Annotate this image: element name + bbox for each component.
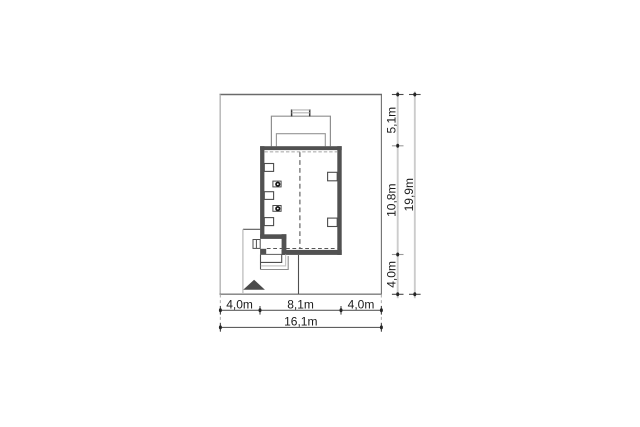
svg-text:8,1m: 8,1m bbox=[287, 298, 314, 312]
svg-text:19,9m: 19,9m bbox=[402, 178, 416, 211]
svg-text:16,1m: 16,1m bbox=[284, 315, 317, 329]
svg-text:4,0m: 4,0m bbox=[226, 298, 253, 312]
svg-text:5,1m: 5,1m bbox=[385, 107, 399, 134]
svg-text:4,0m: 4,0m bbox=[385, 261, 399, 288]
svg-text:4,0m: 4,0m bbox=[348, 298, 375, 312]
svg-text:10,8m: 10,8m bbox=[385, 184, 399, 217]
